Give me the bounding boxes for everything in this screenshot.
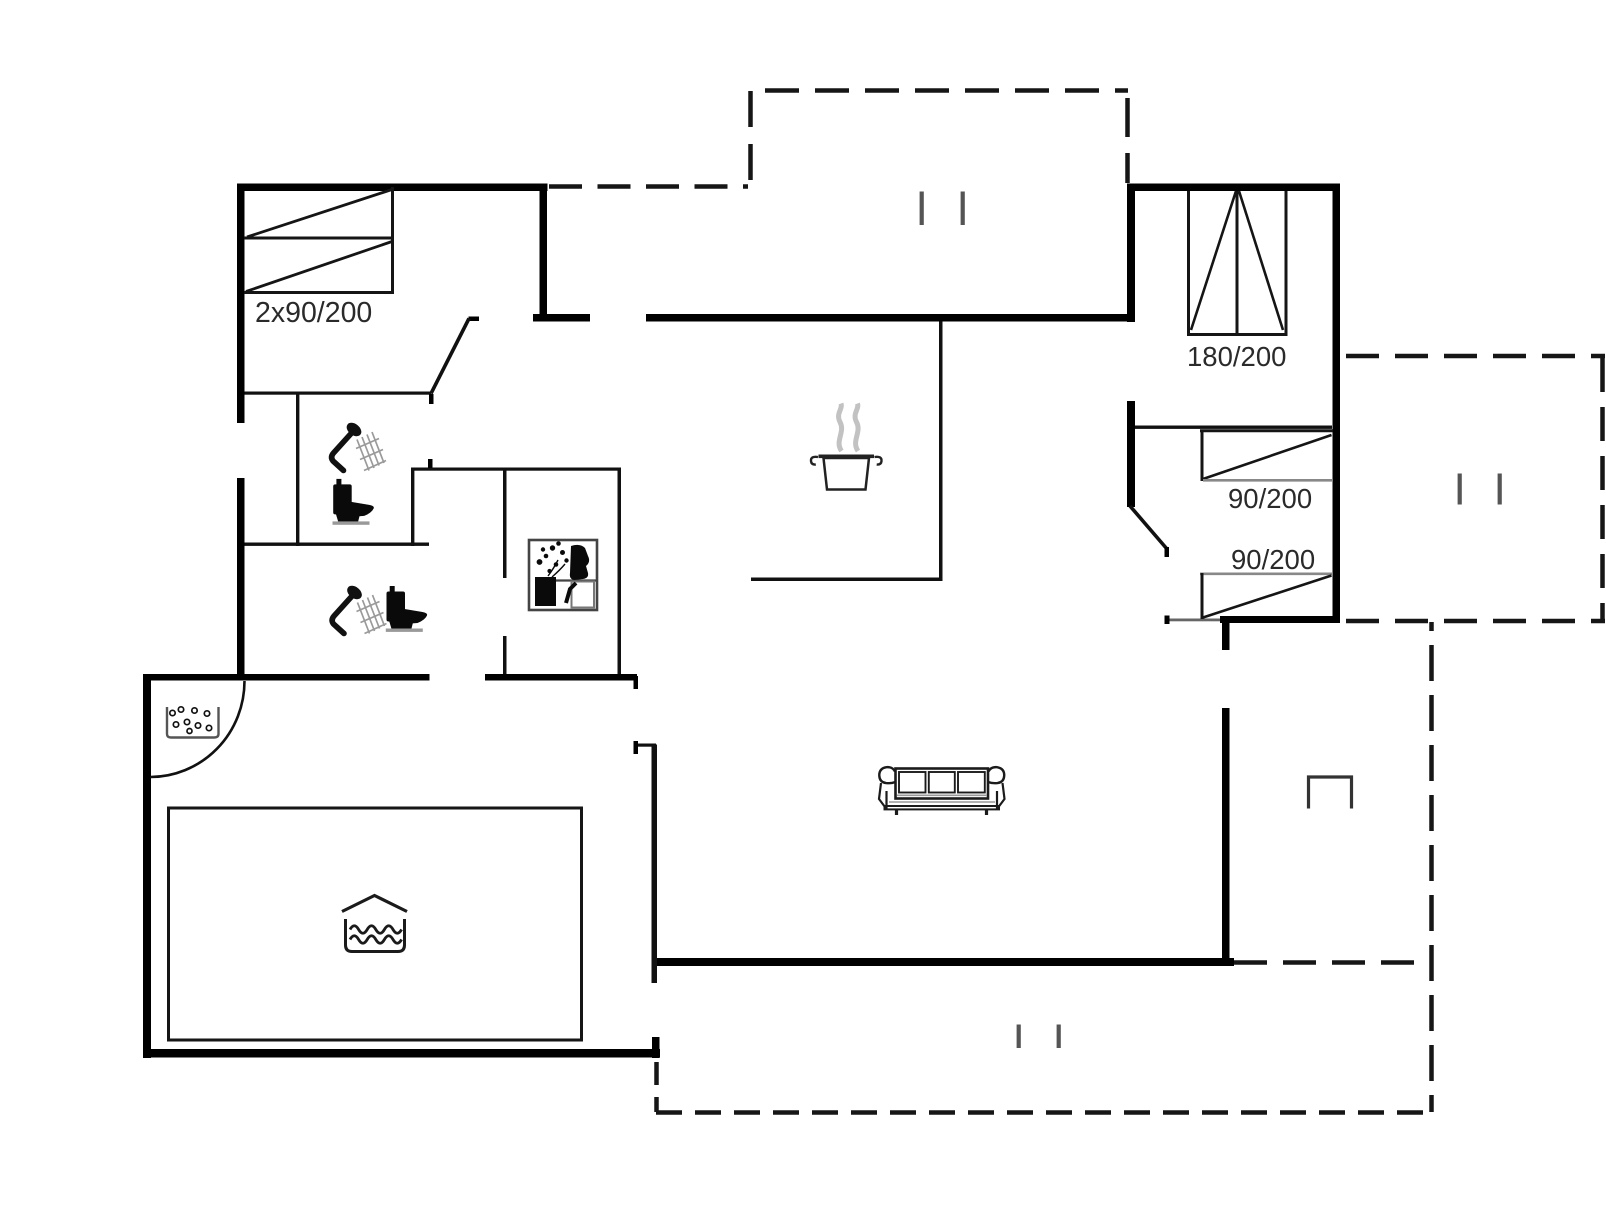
svg-text:90/200: 90/200 [1228, 483, 1312, 514]
svg-text:180/200: 180/200 [1187, 341, 1286, 372]
svg-text:2x90/200: 2x90/200 [255, 297, 372, 329]
svg-text:90/200: 90/200 [1231, 544, 1315, 575]
